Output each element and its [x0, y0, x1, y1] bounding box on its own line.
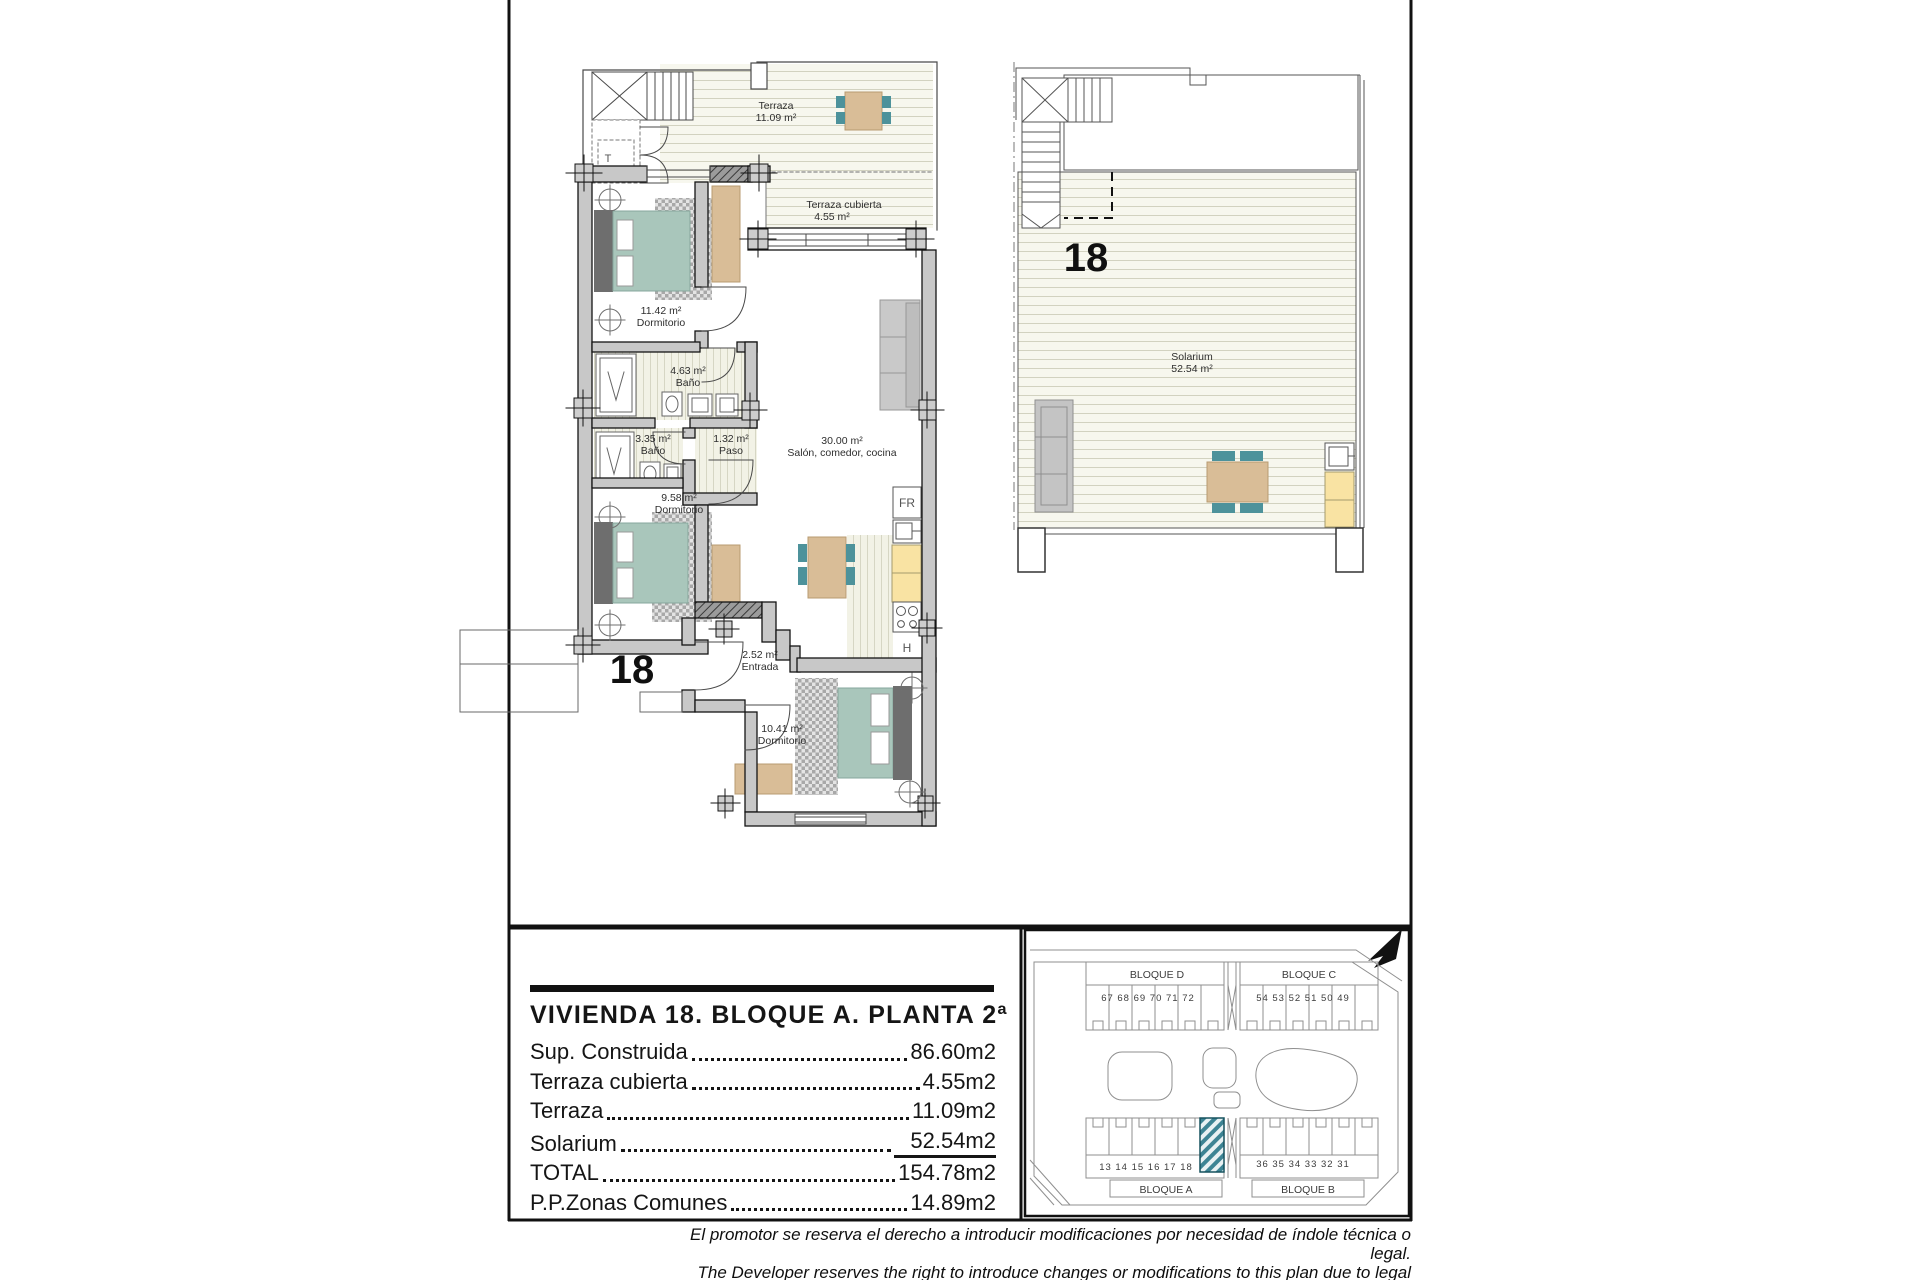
block-d-units: 67 68 69 70 71 72 — [1101, 993, 1195, 1004]
bed-dormitorio2 — [594, 522, 688, 604]
dormitorio3-area: 10.41 m² — [761, 723, 803, 735]
floor-plan-sheet: T — [0, 0, 1920, 1280]
bano2-name: Baño — [641, 445, 666, 457]
bed-dormitorio3 — [838, 686, 912, 780]
leader-dots — [621, 1149, 892, 1152]
leader-dots — [731, 1208, 907, 1211]
staircase — [592, 72, 693, 120]
main-floor-plan: T — [460, 62, 944, 826]
title-rule — [530, 985, 994, 992]
row-value: 14.89m2 — [910, 1188, 996, 1218]
unit-info-panel: VIVIENDA 18. BLOQUE A. PLANTA 2ª Sup. Co… — [530, 985, 996, 1217]
disclaimer-es: El promotor se reserva el derecho a intr… — [690, 1225, 1411, 1263]
block-b-label: BLOQUE B — [1281, 1184, 1335, 1196]
salon-area: 30.00 m² — [821, 435, 863, 447]
leader-dots — [607, 1117, 909, 1120]
terraza-name: Terraza — [758, 100, 793, 112]
solarium-unit-number: 18 — [1064, 236, 1109, 280]
row-label: Sup. Construida — [530, 1037, 688, 1067]
info-row-terraza: Terraza 11.09m2 — [530, 1096, 996, 1126]
site-plan: BLOQUE D BLOQUE C 67 68 69 70 71 72 54 5… — [1025, 929, 1409, 1216]
dormitorio1-area: 11.42 m² — [641, 305, 682, 317]
terraza-cubierta-name: Terraza cubierta — [806, 199, 881, 211]
row-value: 52.54m2 — [894, 1126, 996, 1159]
block-a-label: BLOQUE A — [1139, 1184, 1192, 1196]
entrada-area: 2.52 m² — [742, 649, 778, 661]
row-value: 4.55m2 — [923, 1067, 996, 1097]
row-value: 11.09m2 — [912, 1096, 996, 1126]
terraza-deck — [660, 64, 933, 183]
solarium-labels: Solarium 52.54 m² — [1171, 351, 1213, 375]
pillar-right — [1336, 528, 1363, 572]
info-row-zonas-comunes: P.P.Zonas Comunes 14.89m2 — [530, 1188, 996, 1218]
highlighted-unit-18 — [1200, 1118, 1224, 1172]
dormitorio1-name: Dormitorio — [637, 317, 686, 329]
row-label: P.P.Zonas Comunes — [530, 1188, 727, 1218]
row-value: 86.60m2 — [910, 1037, 996, 1067]
solarium-sofa — [1035, 400, 1073, 512]
salon-name: Salón, comedor, cocina — [787, 447, 896, 459]
block-a-units: 13 14 15 16 17 18 — [1099, 1162, 1193, 1173]
disclaimer-en: The Developer reserves the right to intr… — [690, 1263, 1411, 1280]
block-b-units: 36 35 34 33 32 31 — [1256, 1159, 1350, 1170]
leader-dots — [692, 1058, 908, 1061]
disclaimer: El promotor se reserva el derecho a intr… — [690, 1225, 1411, 1280]
bano2-area: 3.35 m² — [635, 433, 671, 445]
salon-table — [808, 537, 846, 598]
solarium-table — [1207, 462, 1268, 502]
dormitorio3-name: Dormitorio — [758, 735, 807, 747]
main-unit-number: 18 — [610, 648, 655, 692]
info-row-sup-construida: Sup. Construida 86.60m2 — [530, 1037, 996, 1067]
entrada-name: Entrada — [742, 661, 779, 673]
paso-area: 1.32 m² — [713, 433, 749, 445]
leader-dots — [692, 1087, 920, 1090]
terrace-table — [845, 92, 882, 130]
wardrobe-dormitorio1 — [712, 186, 740, 282]
solarium-name: Solarium — [1171, 351, 1213, 363]
bano1-area: 4.63 m² — [670, 365, 706, 377]
row-label: TOTAL — [530, 1158, 599, 1188]
block-c-units: 54 53 52 51 50 49 — [1256, 993, 1350, 1004]
row-label: Terraza cubierta — [530, 1067, 688, 1097]
stair-t-label: T — [605, 153, 612, 165]
info-row-terraza-cubierta: Terraza cubierta 4.55m2 — [530, 1067, 996, 1097]
info-row-solarium: Solarium 52.54m2 — [530, 1126, 996, 1159]
hob-label: H — [903, 641, 912, 655]
block-d-label: BLOQUE D — [1130, 969, 1185, 981]
bench-dormitorio3 — [735, 764, 792, 794]
solarium-sink-counter — [1325, 443, 1355, 527]
bano1-name: Baño — [676, 377, 701, 389]
fridge-label: FR — [899, 496, 915, 510]
unit-title: VIVIENDA 18. BLOQUE A. PLANTA 2ª — [530, 1001, 996, 1030]
sofa-salon — [880, 300, 920, 410]
info-row-total: TOTAL 154.78m2 — [530, 1158, 996, 1188]
dormitorio2-name: Dormitorio — [655, 504, 704, 516]
terraza-area: 11.09 m² — [756, 112, 797, 124]
row-label: Solarium — [530, 1129, 617, 1159]
dormitorio2-area: 9.58 m² — [661, 492, 697, 504]
terraza-cubierta-area: 4.55 m² — [814, 211, 850, 223]
block-c-label: BLOQUE C — [1282, 969, 1337, 981]
pillar-left — [1018, 528, 1045, 572]
leader-dots — [603, 1179, 895, 1182]
row-value: 154.78m2 — [898, 1158, 996, 1188]
solarium-area: 52.54 m² — [1171, 363, 1213, 375]
solarium-plan: 18 Solarium 52.54 m² — [1014, 62, 1364, 572]
bed-dormitorio1 — [594, 210, 690, 292]
row-label: Terraza — [530, 1096, 603, 1126]
paso-name: Paso — [719, 445, 743, 457]
